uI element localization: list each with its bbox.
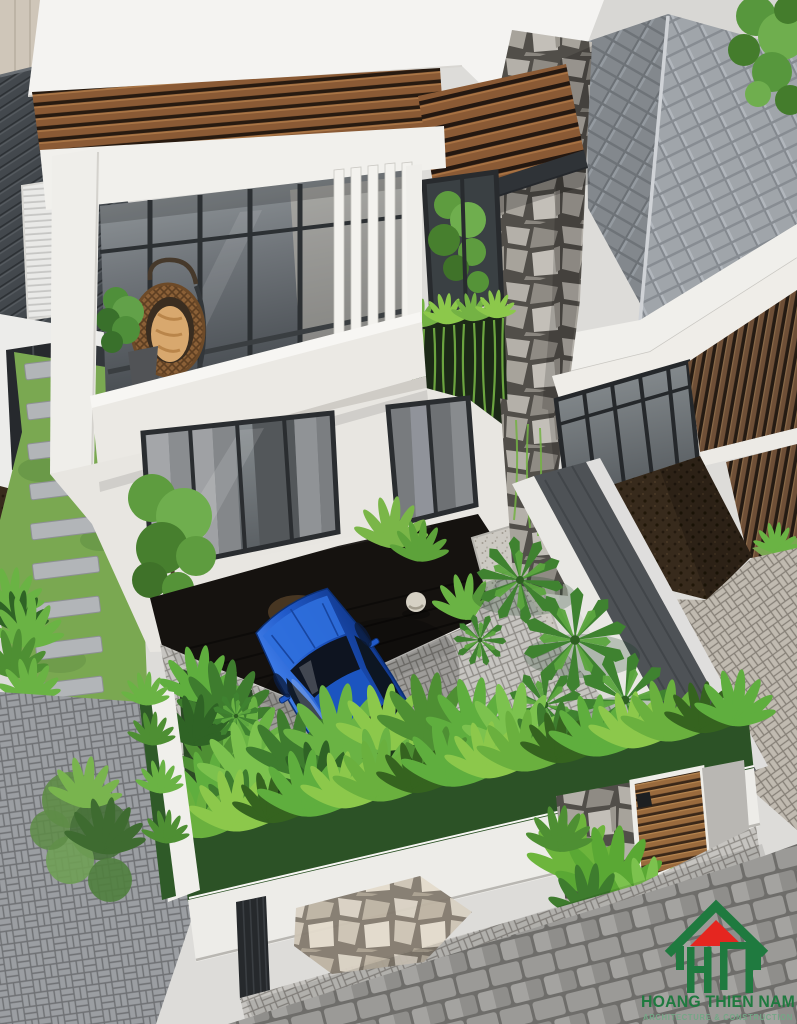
render-canvas: HOANG THIEN NAM ARCHITECTURE & CONSTRUCT…	[0, 0, 797, 1024]
brand-tagline-text: ARCHITECTURE & CONSTRUCTION	[643, 1012, 793, 1022]
brand-name-text: HOANG THIEN NAM	[641, 992, 795, 1011]
dark-gate-panel	[236, 896, 270, 1000]
ground-window-right	[388, 398, 478, 526]
gate-lamp	[636, 792, 652, 808]
